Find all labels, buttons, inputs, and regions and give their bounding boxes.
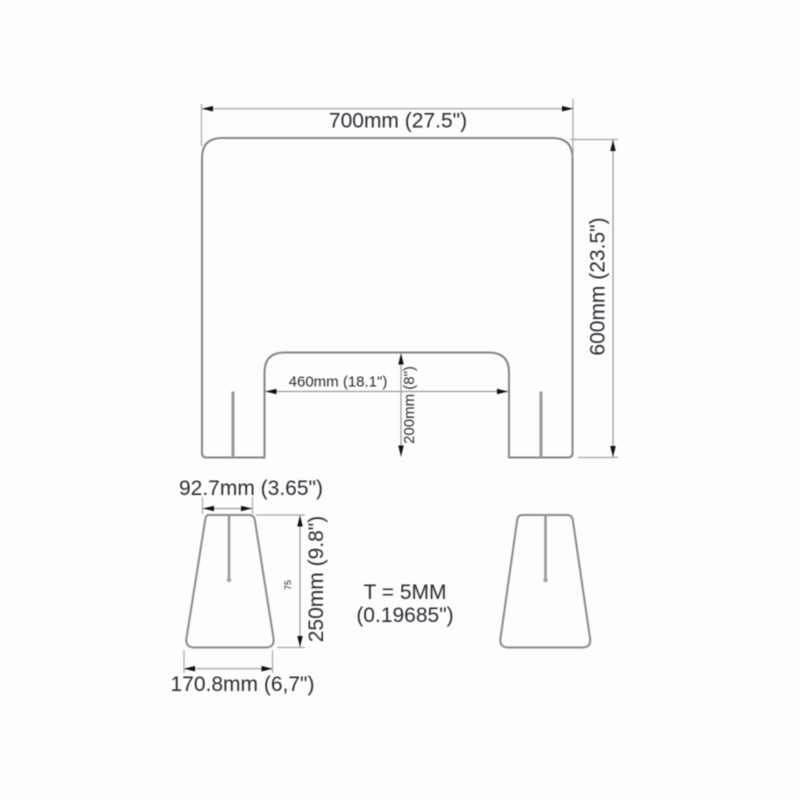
svg-text:250mm (9.8"): 250mm (9.8") [305,516,328,643]
svg-text:92.7mm (3.65"): 92.7mm (3.65") [179,477,323,500]
svg-text:170.8mm (6,7"): 170.8mm (6,7") [170,673,314,696]
svg-text:75: 75 [283,580,293,590]
svg-text:600mm (23.5"): 600mm (23.5") [587,217,610,355]
svg-text:460mm (18.1"): 460mm (18.1") [289,374,388,391]
svg-text:700mm (27.5"): 700mm (27.5") [329,110,467,133]
svg-text:(0.19685"): (0.19685") [356,604,453,627]
svg-text:T = 5MM: T = 5MM [363,581,446,604]
svg-text:200mm (8"): 200mm (8") [401,366,418,444]
